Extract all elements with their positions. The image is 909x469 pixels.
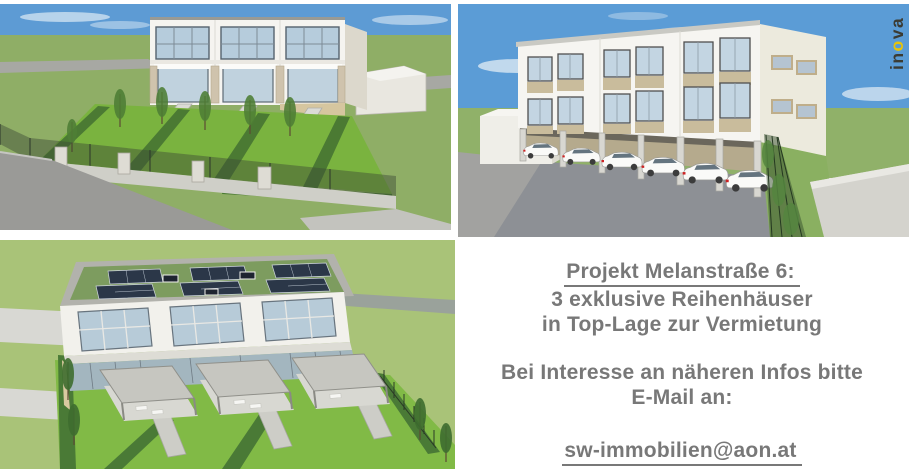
- inova-logo: inova: [886, 4, 908, 70]
- project-title: Projekt Melanstraße 6:: [455, 259, 909, 287]
- contact-line-2: E-Mail an:: [455, 385, 909, 410]
- townhouse-building: [150, 17, 367, 118]
- logo-text: in: [887, 51, 907, 70]
- project-subtitle-2: in Top-Lage zur Vermietung: [455, 312, 909, 337]
- project-subtitle-1: 3 exklusive Reihenhäuser: [455, 287, 909, 312]
- contact-line-1: Bei Interesse an näheren Infos bitte: [455, 360, 909, 385]
- render-carport-view: [458, 4, 909, 237]
- info-panel: Projekt Melanstraße 6: 3 exklusive Reihe…: [455, 240, 909, 469]
- email-address[interactable]: sw-immobilien@aon.at: [562, 438, 801, 466]
- render-garden-view: [0, 4, 451, 230]
- logo-o: o: [887, 39, 907, 51]
- email-line: sw-immobilien@aon.at: [455, 438, 909, 466]
- flyer-page: inova: [0, 0, 909, 469]
- render-aerial-view: [0, 240, 455, 469]
